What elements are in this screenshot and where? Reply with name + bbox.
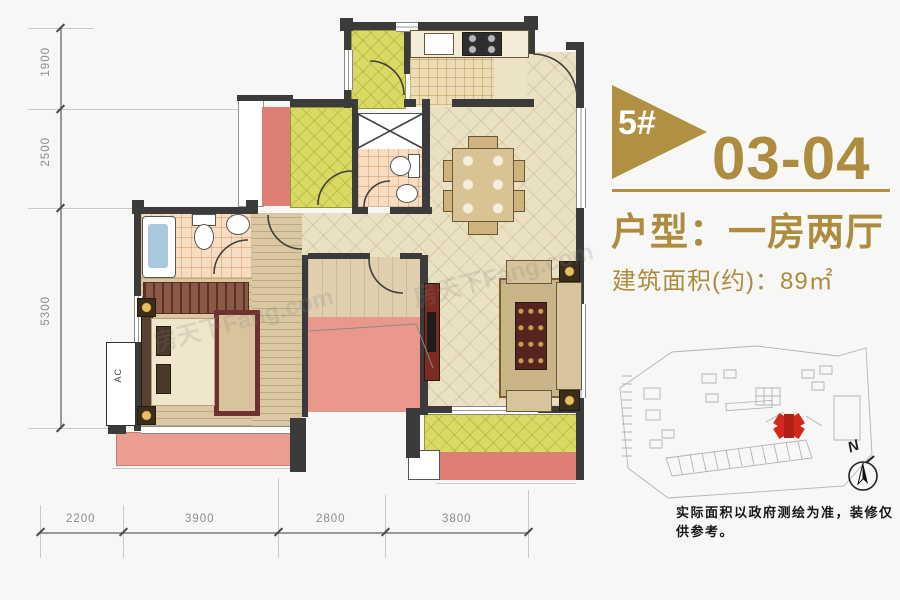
floorplan-page: 1900 2500 5300 2200 3900 2800 3800 xyxy=(0,0,900,600)
balcony-door-arc xyxy=(370,61,404,95)
mid-balcony-door-arc xyxy=(318,171,352,205)
site-building-cluster xyxy=(802,366,832,390)
dim-label: 2200 xyxy=(66,513,96,525)
unit-type: 户型：一房两厅 xyxy=(611,201,884,256)
flex-door-arc xyxy=(369,259,403,293)
bedroom-door-arc xyxy=(268,215,302,249)
unit-number: 03-04 xyxy=(712,124,870,193)
site-building-bar xyxy=(726,400,772,410)
site-building-cluster xyxy=(702,370,736,402)
site-grid-block xyxy=(756,388,780,405)
highlighted-building xyxy=(773,413,805,439)
unit-area: 建筑面积(约)：89㎡ xyxy=(612,261,834,296)
site-block xyxy=(834,396,860,440)
site-parking-rows xyxy=(666,440,812,476)
north-arrow xyxy=(840,450,886,496)
building-badge-label: 5# xyxy=(618,104,656,143)
site-building-cluster xyxy=(650,430,674,448)
ext-line xyxy=(385,495,386,558)
compass-needle-dark xyxy=(863,463,868,484)
site-building xyxy=(646,410,660,420)
guest-bath-door-arc xyxy=(364,181,390,207)
dim-label: 3800 xyxy=(442,513,472,525)
highlight-core xyxy=(784,414,794,438)
dim-line-bottom xyxy=(40,532,528,534)
compass-tilt-line xyxy=(866,456,874,463)
compass-needle-light xyxy=(858,463,863,484)
flue-x-mark xyxy=(358,114,422,148)
disclaimer-text: 实际面积以政府测绘为准，装修仅供参考。 xyxy=(676,502,900,540)
dim-label: 3900 xyxy=(185,513,215,525)
ext-line xyxy=(528,490,529,558)
flex-room-line xyxy=(309,324,433,368)
entry-door-arc xyxy=(533,54,577,98)
dim-label: 2800 xyxy=(316,513,346,525)
master-bath-door-arc xyxy=(214,240,248,274)
site-hatch-left xyxy=(622,376,632,456)
divider-rule xyxy=(612,189,890,192)
site-building xyxy=(644,388,660,399)
